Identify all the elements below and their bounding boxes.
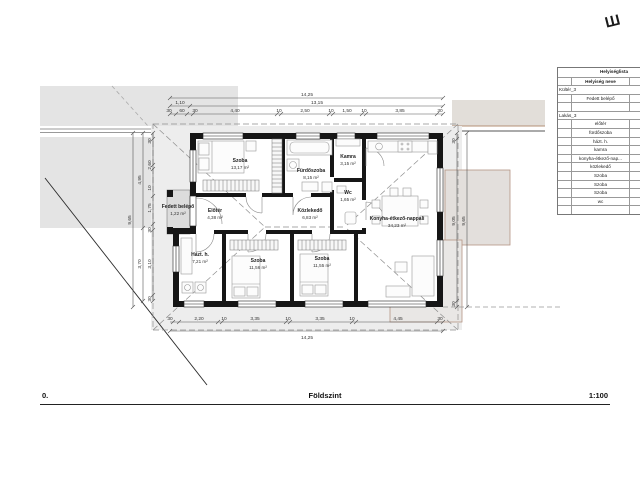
room-label-hazt: Házt. h.: [191, 252, 209, 258]
col-header-area: Te: [630, 78, 640, 86]
dim-label: 10: [328, 108, 334, 114]
room-area-wc: 1,65 m²: [340, 197, 356, 202]
dim-label: 9,05: [451, 216, 457, 226]
dim-label: 10: [361, 108, 367, 114]
room-area-kozlekedo: 6,83 m²: [302, 215, 318, 220]
dim-label: 30: [437, 108, 443, 114]
table-row-total: 100: [558, 205, 640, 214]
dim-label: 10: [349, 316, 355, 322]
dim-label: 30: [192, 108, 198, 114]
room-area-szoba1: 13,17 m²: [231, 165, 250, 170]
dim-label: 13,15: [311, 100, 323, 106]
table-row: Fedett belépő: [558, 94, 640, 103]
room-list-table: Helyiséglista Helyiség neve Te Kültér_3 …: [557, 67, 640, 215]
room-area-eloter: 4,38 m²: [207, 215, 223, 220]
table-row: Szoba: [558, 180, 640, 189]
room-area-furdoszoba: 8,15 m²: [303, 175, 319, 180]
table-row: házt. h.: [558, 137, 640, 146]
dim-label: 3,35: [250, 316, 260, 322]
dim-label: 30: [451, 138, 457, 144]
dim-label: 30: [451, 301, 457, 307]
dim-label: 4,40: [230, 108, 240, 114]
dim-label: 30: [147, 296, 153, 302]
table-row: Szoba: [558, 171, 640, 180]
room-label-szoba3: Szoba: [315, 256, 330, 262]
room-label-wc: Wc: [344, 190, 352, 196]
room-label-kamra: Kamra: [340, 154, 356, 160]
table-row: kamra: [558, 145, 640, 154]
drawing-scale: 1:100: [589, 391, 608, 400]
table-row: 1,: [558, 102, 640, 111]
room-area-hazt: 7,21 m²: [192, 259, 208, 264]
dim-label: 4,95: [137, 175, 143, 185]
dim-label: 4,45: [393, 316, 403, 322]
room-area-szoba3: 11,55 m²: [313, 263, 331, 268]
room-label-szoba2: Szoba: [251, 258, 266, 264]
table-row: konyha-étkező-nap...: [558, 154, 640, 163]
dim-label: 9,65: [127, 215, 133, 225]
dim-label: 10: [285, 316, 291, 322]
room-area-kamra: 3,15 m²: [340, 161, 356, 166]
dim-label: 9,65: [461, 216, 467, 226]
dim-label: 3,85: [395, 108, 405, 114]
dim-label: 3,10: [147, 259, 153, 269]
dim-label: 3,35: [315, 316, 325, 322]
table-row: Kültér_3: [558, 85, 640, 94]
dim-label: 14,25: [301, 92, 313, 98]
title-bar: 0. Földszint 1:100: [40, 388, 610, 405]
dim-label: 30: [437, 316, 443, 322]
dim-label: 2,20: [194, 316, 204, 322]
dim-label: 2,50: [300, 108, 310, 114]
table-row: fürdőszoba: [558, 128, 640, 137]
dim-label: 10: [147, 185, 153, 191]
dim-label: 14,25: [301, 335, 313, 341]
table-title: Helyiséglista: [558, 68, 640, 77]
dim-label: 10: [276, 108, 282, 114]
dim-label: 3,70: [137, 259, 143, 269]
dim-label: 30: [166, 108, 172, 114]
dim-label: 60: [179, 108, 185, 114]
floor-plan-drawing: 14,25 1,10 13,15 30 60 30 4,40 10 2,50 1…: [0, 0, 640, 480]
storey-name: Földszint: [40, 391, 610, 400]
room-label-kozlekedo: Közlekedő: [297, 208, 322, 214]
table-row: Szoba: [558, 188, 640, 197]
dim-label: 30: [147, 227, 153, 233]
dim-label: 1,50: [342, 108, 352, 114]
col-header-name: Helyiség neve: [572, 78, 630, 86]
table-header-row: Helyiség neve Te: [558, 77, 640, 86]
room-area-fedett-belepo: 1,22 m²: [170, 211, 186, 216]
dim-label: 10: [221, 316, 227, 322]
table-row: előtér: [558, 119, 640, 128]
room-area-szoba2: 11,56 m²: [249, 265, 267, 270]
room-label-konyha: Konyha-étkező-nappali: [370, 216, 425, 222]
dim-label: 1,75: [147, 203, 153, 213]
dim-label: 2,60: [147, 160, 153, 170]
room-area-konyha: 34,23 m²: [388, 223, 407, 228]
room-label-fedett-belepo: Fedett belépő: [162, 204, 195, 210]
table-row: wc: [558, 197, 640, 206]
dim-label: 30: [167, 316, 173, 322]
dim-label: 30: [147, 138, 153, 144]
room-label-eloter: Előtér: [208, 208, 222, 214]
room-label-szoba1: Szoba: [233, 158, 248, 164]
table-row: Lakás_3: [558, 111, 640, 120]
dim-label: 1,10: [175, 100, 185, 106]
room-label-furdoszoba: Fürdőszoba: [297, 168, 326, 174]
floorplan-sheet: 14,25 1,10 13,15 30 60 30 4,40 10 2,50 1…: [0, 0, 640, 480]
table-row: közlekedő: [558, 162, 640, 171]
